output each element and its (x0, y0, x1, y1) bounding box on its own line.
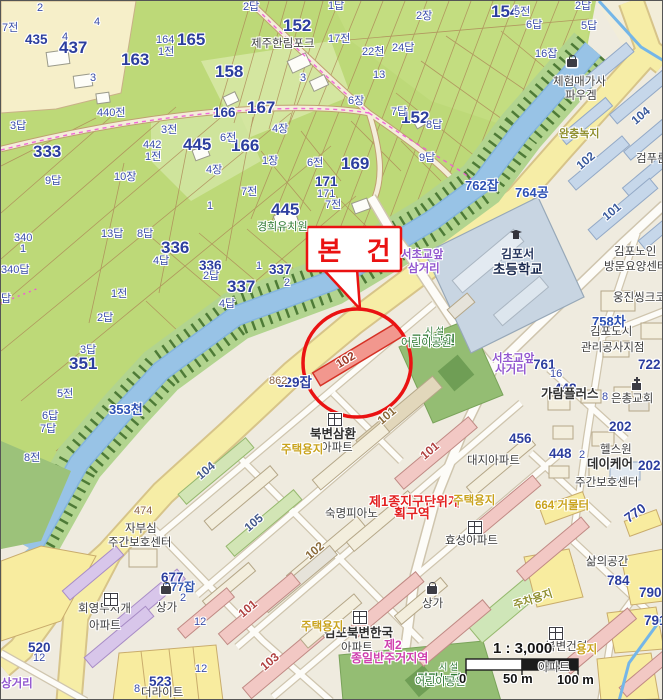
map-base (1, 1, 663, 700)
callout-box (307, 227, 401, 271)
map-canvas[interactable]: 4374351631651521581671664453333513363371… (0, 0, 663, 700)
